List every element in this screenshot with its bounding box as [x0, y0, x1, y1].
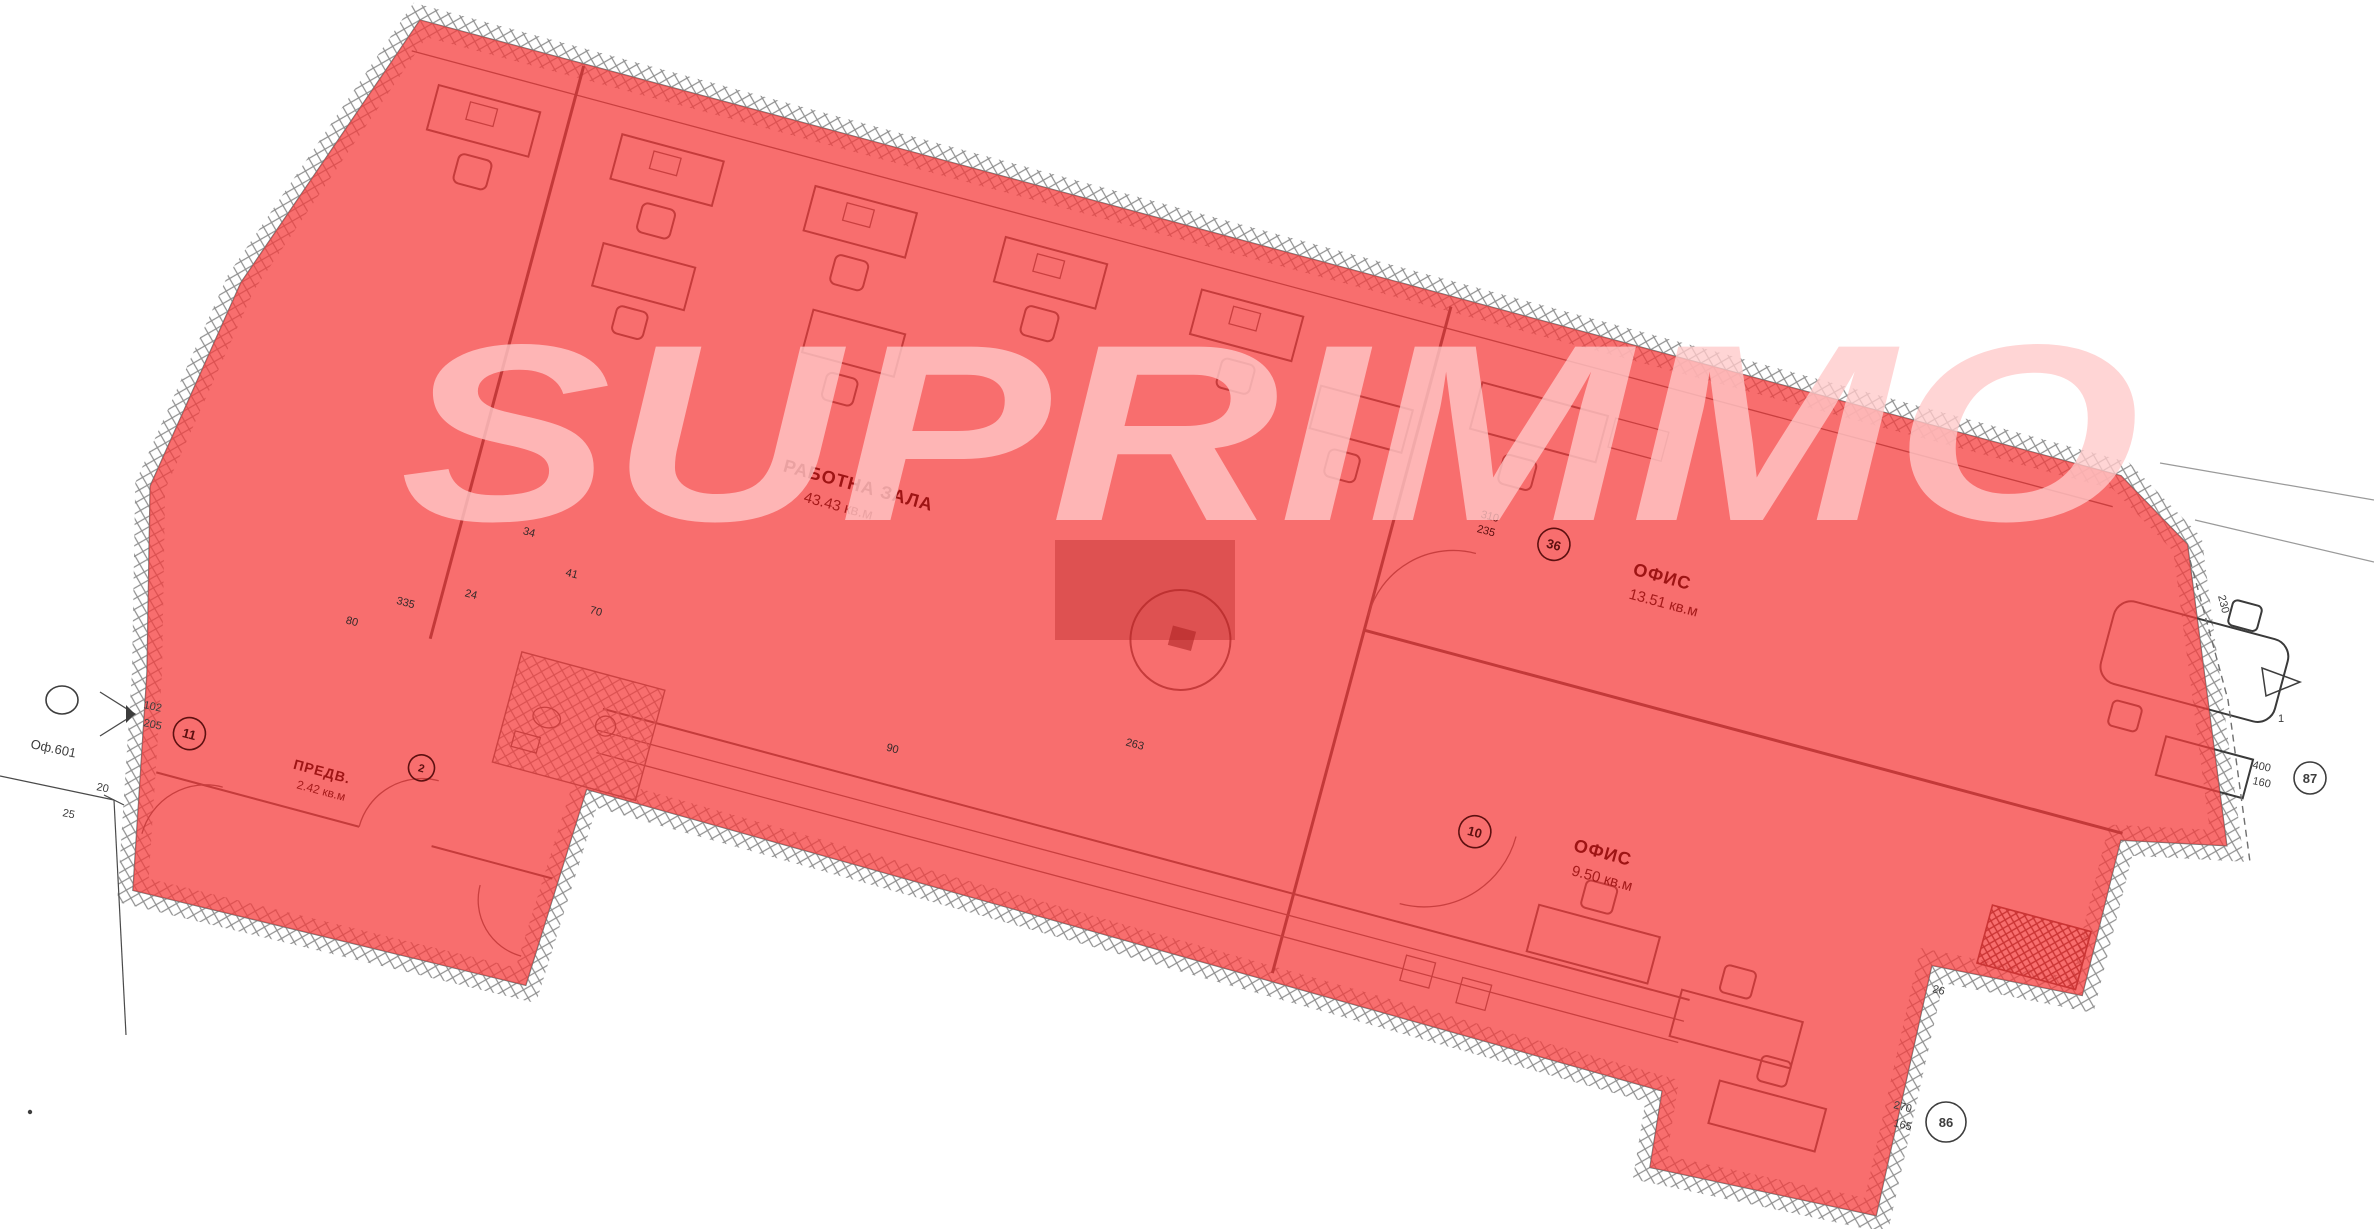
survey-dot [28, 1110, 32, 1114]
left-tick-25: 25 [61, 807, 75, 821]
office-ref-label: Оф.601 [29, 736, 77, 760]
right-door-no: 1 [2278, 713, 2284, 725]
left-tick-20: 20 [95, 781, 109, 795]
watermark-text: SUPRIMMO [400, 293, 2140, 574]
marker-87: 87 [2303, 771, 2317, 786]
right-dim-400: 400 [2251, 759, 2271, 775]
right-dim-160: 160 [2251, 775, 2271, 791]
door-swing-triangle-icon [2262, 668, 2300, 696]
floor-plan-page: РАБОТНА ЗАЛА 43.43 кв.м ОФИС 13.51 кв.м … [0, 0, 2374, 1229]
right-width-230: 230 [2215, 594, 2231, 615]
floor-plan-drawing: РАБОТНА ЗАЛА 43.43 кв.м ОФИС 13.51 кв.м … [0, 0, 2374, 1229]
marker-86: 86 [1939, 1115, 1953, 1130]
